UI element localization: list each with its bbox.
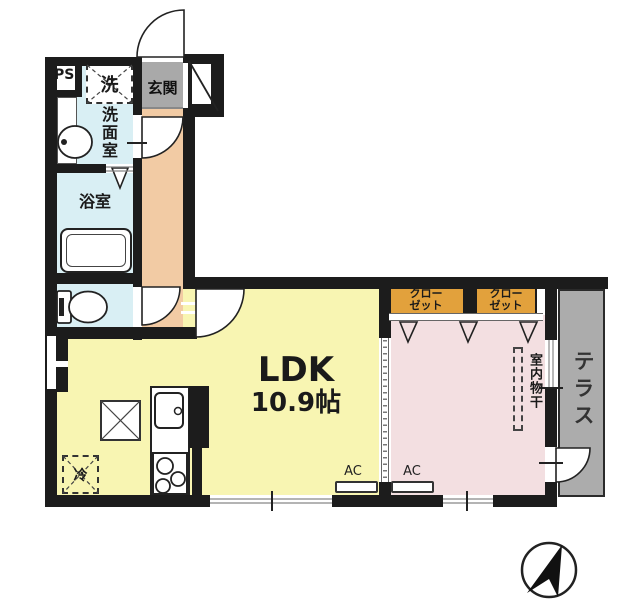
ldk-size: 10.9帖 (206, 388, 386, 418)
closet-right-label: クロー ゼット (477, 288, 535, 312)
entrance-label: 玄関 (142, 77, 183, 98)
washer-label-text: 洗 (101, 75, 119, 96)
wall-bath-toilet (45, 273, 142, 284)
wall-top-left (45, 57, 142, 66)
ac-bedroom-label-text: AC (403, 464, 421, 479)
room-toilet (57, 284, 133, 327)
north-compass (522, 543, 576, 597)
ac-unit-bedroom (391, 481, 434, 493)
opening-toilet-door (133, 287, 142, 327)
ldk-name: LDK (206, 352, 386, 388)
wall-kitchen-lower (192, 448, 202, 497)
indoor-drying-label: 室内物干 (525, 353, 544, 409)
washer-label: 洗 (86, 71, 133, 97)
washroom-label: 洗面室 (96, 106, 120, 160)
fridge-label-text: 冷 (74, 468, 88, 484)
bathtub-inner (66, 234, 126, 267)
ps-label-text: PS (54, 67, 74, 83)
slot-pillar-window (47, 336, 56, 389)
opening-ldk-door-b (181, 311, 197, 314)
ldk-size-text: 10.9帖 (251, 388, 341, 418)
wall-hall-right (183, 108, 195, 289)
wall-shoe-bottom (183, 108, 224, 117)
ldk-label: LDK 10.9帖 (206, 352, 386, 418)
closet-left-line2: ゼット (389, 300, 463, 312)
entrance-door-arc (137, 10, 184, 57)
slot-pillar-gap (56, 361, 68, 367)
closet-left-label: クロー ゼット (389, 288, 463, 312)
bathroom-label: 浴室 (57, 188, 133, 212)
window-ldk-south (210, 495, 332, 507)
ldk-name-text: LDK (258, 350, 334, 390)
kitchen-sink (154, 392, 184, 429)
indoor-drying-label-text: 室内物干 (527, 353, 542, 409)
entrance-step-line (142, 107, 183, 109)
opening-bath-door (106, 164, 133, 173)
window-east (545, 340, 557, 388)
ac-bedroom-label: AC (392, 464, 432, 479)
opening-terrace-door (545, 447, 557, 482)
entrance-label-text: 玄関 (147, 79, 177, 97)
kitchen-stove (152, 452, 188, 495)
terrace-label-text: テラス (571, 350, 595, 431)
indoor-drying-bar (513, 347, 523, 431)
opening-ldk-door-a (181, 302, 197, 305)
room-hallway (142, 108, 183, 330)
shoe-cabinet (188, 60, 215, 108)
vanity-counter (57, 97, 77, 164)
wall-ps-bottom (45, 90, 82, 97)
slot-closet-right (537, 289, 545, 315)
washroom-label-text: 洗面室 (99, 106, 118, 160)
ac-ldk-label: AC (333, 464, 373, 479)
bathroom-label-text: 浴室 (79, 192, 111, 211)
fridge-label: 冷 (62, 465, 99, 485)
closet-door-track (389, 313, 543, 321)
window-bedroom-south (443, 495, 493, 507)
closet-right-line2: ゼット (477, 300, 535, 312)
prep-table (100, 400, 141, 441)
floorplan: PS 洗 玄関 洗面室 浴室 LDK 10.9帖 クロー ゼット クロー ゼット… (0, 0, 640, 603)
terrace-label: テラス (568, 350, 598, 431)
opening-washroom-door (133, 115, 142, 158)
ac-unit-ldk (335, 481, 378, 493)
ac-ldk-label-text: AC (344, 464, 362, 479)
wall-closet-mid (463, 289, 477, 315)
ps-label: PS (54, 67, 80, 83)
